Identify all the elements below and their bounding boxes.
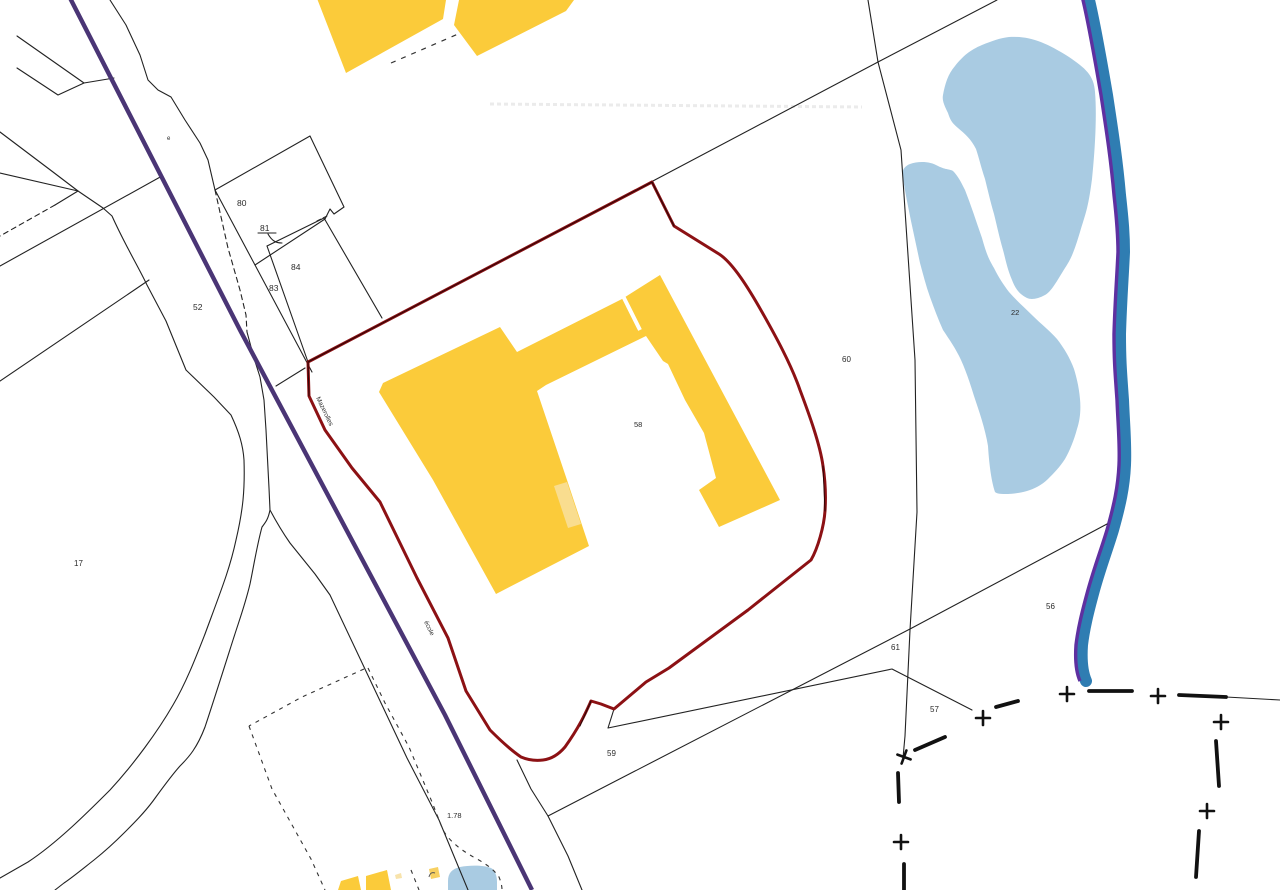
svg-text:61: 61: [891, 643, 900, 652]
svg-text:60: 60: [842, 355, 851, 364]
svg-text:56: 56: [1046, 602, 1055, 611]
svg-text:80: 80: [237, 198, 247, 208]
svg-text:59: 59: [607, 749, 616, 758]
svg-text:52: 52: [193, 302, 203, 312]
svg-text:81: 81: [260, 223, 270, 233]
svg-text:84: 84: [291, 262, 301, 272]
svg-text:1.78: 1.78: [447, 811, 462, 820]
svg-text:58: 58: [634, 420, 642, 429]
svg-text:83: 83: [269, 283, 279, 293]
svg-text:17: 17: [74, 559, 83, 568]
svg-text:57: 57: [930, 705, 939, 714]
svg-text:22: 22: [1011, 308, 1019, 317]
